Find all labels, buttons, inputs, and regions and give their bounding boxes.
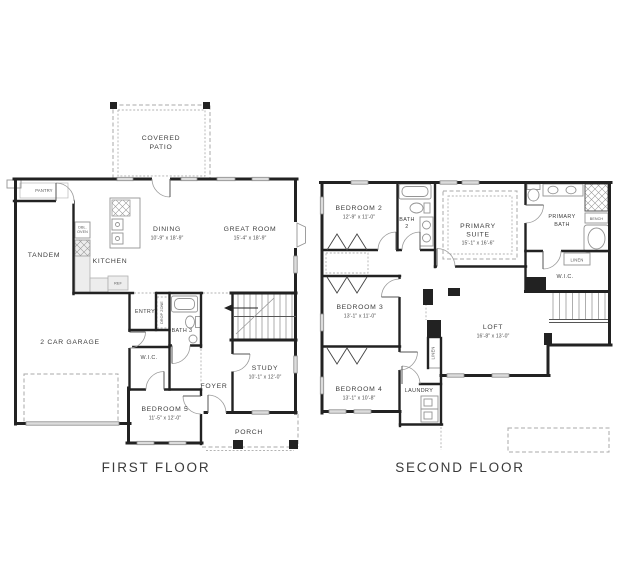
room-label-wic-first: W.I.C. [140,355,157,361]
room-label-foyer: FOYER [201,383,228,390]
room-label-covered-patio-line2: PATIO [150,144,173,151]
closet-doors-bedroom3 [327,277,367,293]
room-dims-great-room: 15'-4" x 18'-9" [234,236,267,242]
room-label-porch: PORCH [235,429,263,436]
garage-entry-door [127,332,146,348]
second-floor-title: SECOND FLOOR [395,460,525,475]
laundry-door [402,366,420,384]
room-label-entry: ENTRY [135,309,155,315]
walls-first-floor [14,179,297,444]
room-label-great-room: GREAT ROOM [224,226,277,233]
vanity-primary-bath [543,184,583,196]
garage-clearance-outline [24,374,118,424]
roof-outline-dashes [441,427,609,452]
room-label-dining: DINING [153,226,181,233]
room-label-loft: LOFT [483,324,503,331]
primary-bath-door [523,205,544,223]
room-label-pantry: PANTRY [35,188,52,193]
primary-suite-door [437,249,455,270]
room-label-bedroom3: BEDROOM 3 [336,304,383,311]
vanity-bath2 [420,217,433,246]
patio-door [152,176,170,197]
tub-primary-bath [584,225,609,252]
room-dims-bedroom3: 13'-1" x 11'-0" [344,314,377,320]
closet-doors-bedroom4 [327,348,367,364]
bedroom2-door [378,232,396,253]
label-ref: REF [114,282,122,286]
room-label-wic-second: W.I.C. [556,274,573,280]
room-dims-bedroom4: 13'-1" x 10'-8" [343,396,376,402]
room-label-covered-patio-line1: COVERED [142,135,181,142]
room-dims-dining: 10'-9" x 18'-9" [151,236,184,242]
room-label-study: STUDY [252,365,279,372]
pantry-door [56,183,74,204]
shower-primary-bath [585,184,608,211]
room-dims-bedroom5: 11'-5" x 12'-0" [149,416,182,422]
bedroom3-door [382,279,403,297]
labels-second-floor: BEDROOM 2 12'-9" x 11'-0" BATH 2 PRIMARY… [335,205,603,402]
kitchen-counter [75,240,108,292]
room-label-bath2-line2: 2 [405,224,408,230]
first-floor-plan: COVERED PATIO PANTRY TANDEM DBL. OVEN KI… [7,102,306,451]
bathtub-bath3 [172,296,198,312]
washer-dryer [421,396,438,422]
room-dims-bedroom2: 12'-9" x 11'-0" [343,215,376,221]
closet-shelf-bedroom2-3 [326,253,368,273]
room-label-bedroom4: BEDROOM 4 [335,386,382,393]
label-dbl-oven-line1: DBL. [78,226,87,230]
label-linen-wic: LINEN [570,258,583,263]
wic-door-second-floor [543,248,561,269]
study-door [230,354,250,372]
room-label-tandem: TANDEM [28,252,60,259]
room-label-bath3: BATH 3 [172,328,193,334]
toilet-bath2 [410,203,430,213]
room-dims-loft: 16'-8" x 13'-0" [477,334,510,340]
closet-doors-bedroom2 [327,234,367,250]
room-label-garage: 2 CAR GARAGE [40,339,99,346]
wic-door-first-floor [146,372,164,393]
toilet-bath3 [186,316,201,328]
room-label-laundry: LAUNDRY [405,388,433,394]
room-dims-study: 10'-1" x 12'-0" [249,375,282,381]
room-label-bedroom2: BEDROOM 2 [335,205,382,212]
label-drop-zone: DROP ZONE [160,301,164,324]
bath2-door [402,232,420,253]
toilet-primary-bath [527,184,540,201]
room-label-primary-bath-line1: PRIMARY [548,214,575,220]
label-dbl-oven-line2: OVEN [77,230,88,234]
bedroom4-door [397,352,418,370]
room-label-primary-suite-line2: SUITE [466,232,490,239]
floor-plan-page: COVERED PATIO PANTRY TANDEM DBL. OVEN KI… [0,0,617,582]
front-door [208,395,226,415]
stairs-second-floor [544,293,608,345]
label-linen-hall: LINEN [431,346,436,359]
room-label-primary-suite-line1: PRIMARY [460,223,496,230]
room-label-bedroom5: BEDROOM 5 [141,406,188,413]
second-floor-plan: BEDROOM 2 12'-9" x 11'-0" BATH 2 PRIMARY… [319,180,611,452]
room-dims-primary-suite: 15'-1" x 16'-6" [462,241,495,247]
bathtub-bath2 [399,184,431,199]
kitchen-island [110,198,140,248]
room-label-kitchen: KITCHEN [93,258,128,265]
great-room-exterior-door [293,222,306,248]
stairs-first-floor [224,295,296,339]
label-bench: BENCH [590,217,604,221]
floor-plan-canvas: COVERED PATIO PANTRY TANDEM DBL. OVEN KI… [0,0,617,582]
first-floor-title: FIRST FLOOR [102,460,211,475]
sink-bath3 [189,335,197,343]
room-label-primary-bath-line2: BATH [554,222,570,228]
room-label-bath2-line1: BATH [399,217,415,223]
bath3-door [172,343,190,364]
